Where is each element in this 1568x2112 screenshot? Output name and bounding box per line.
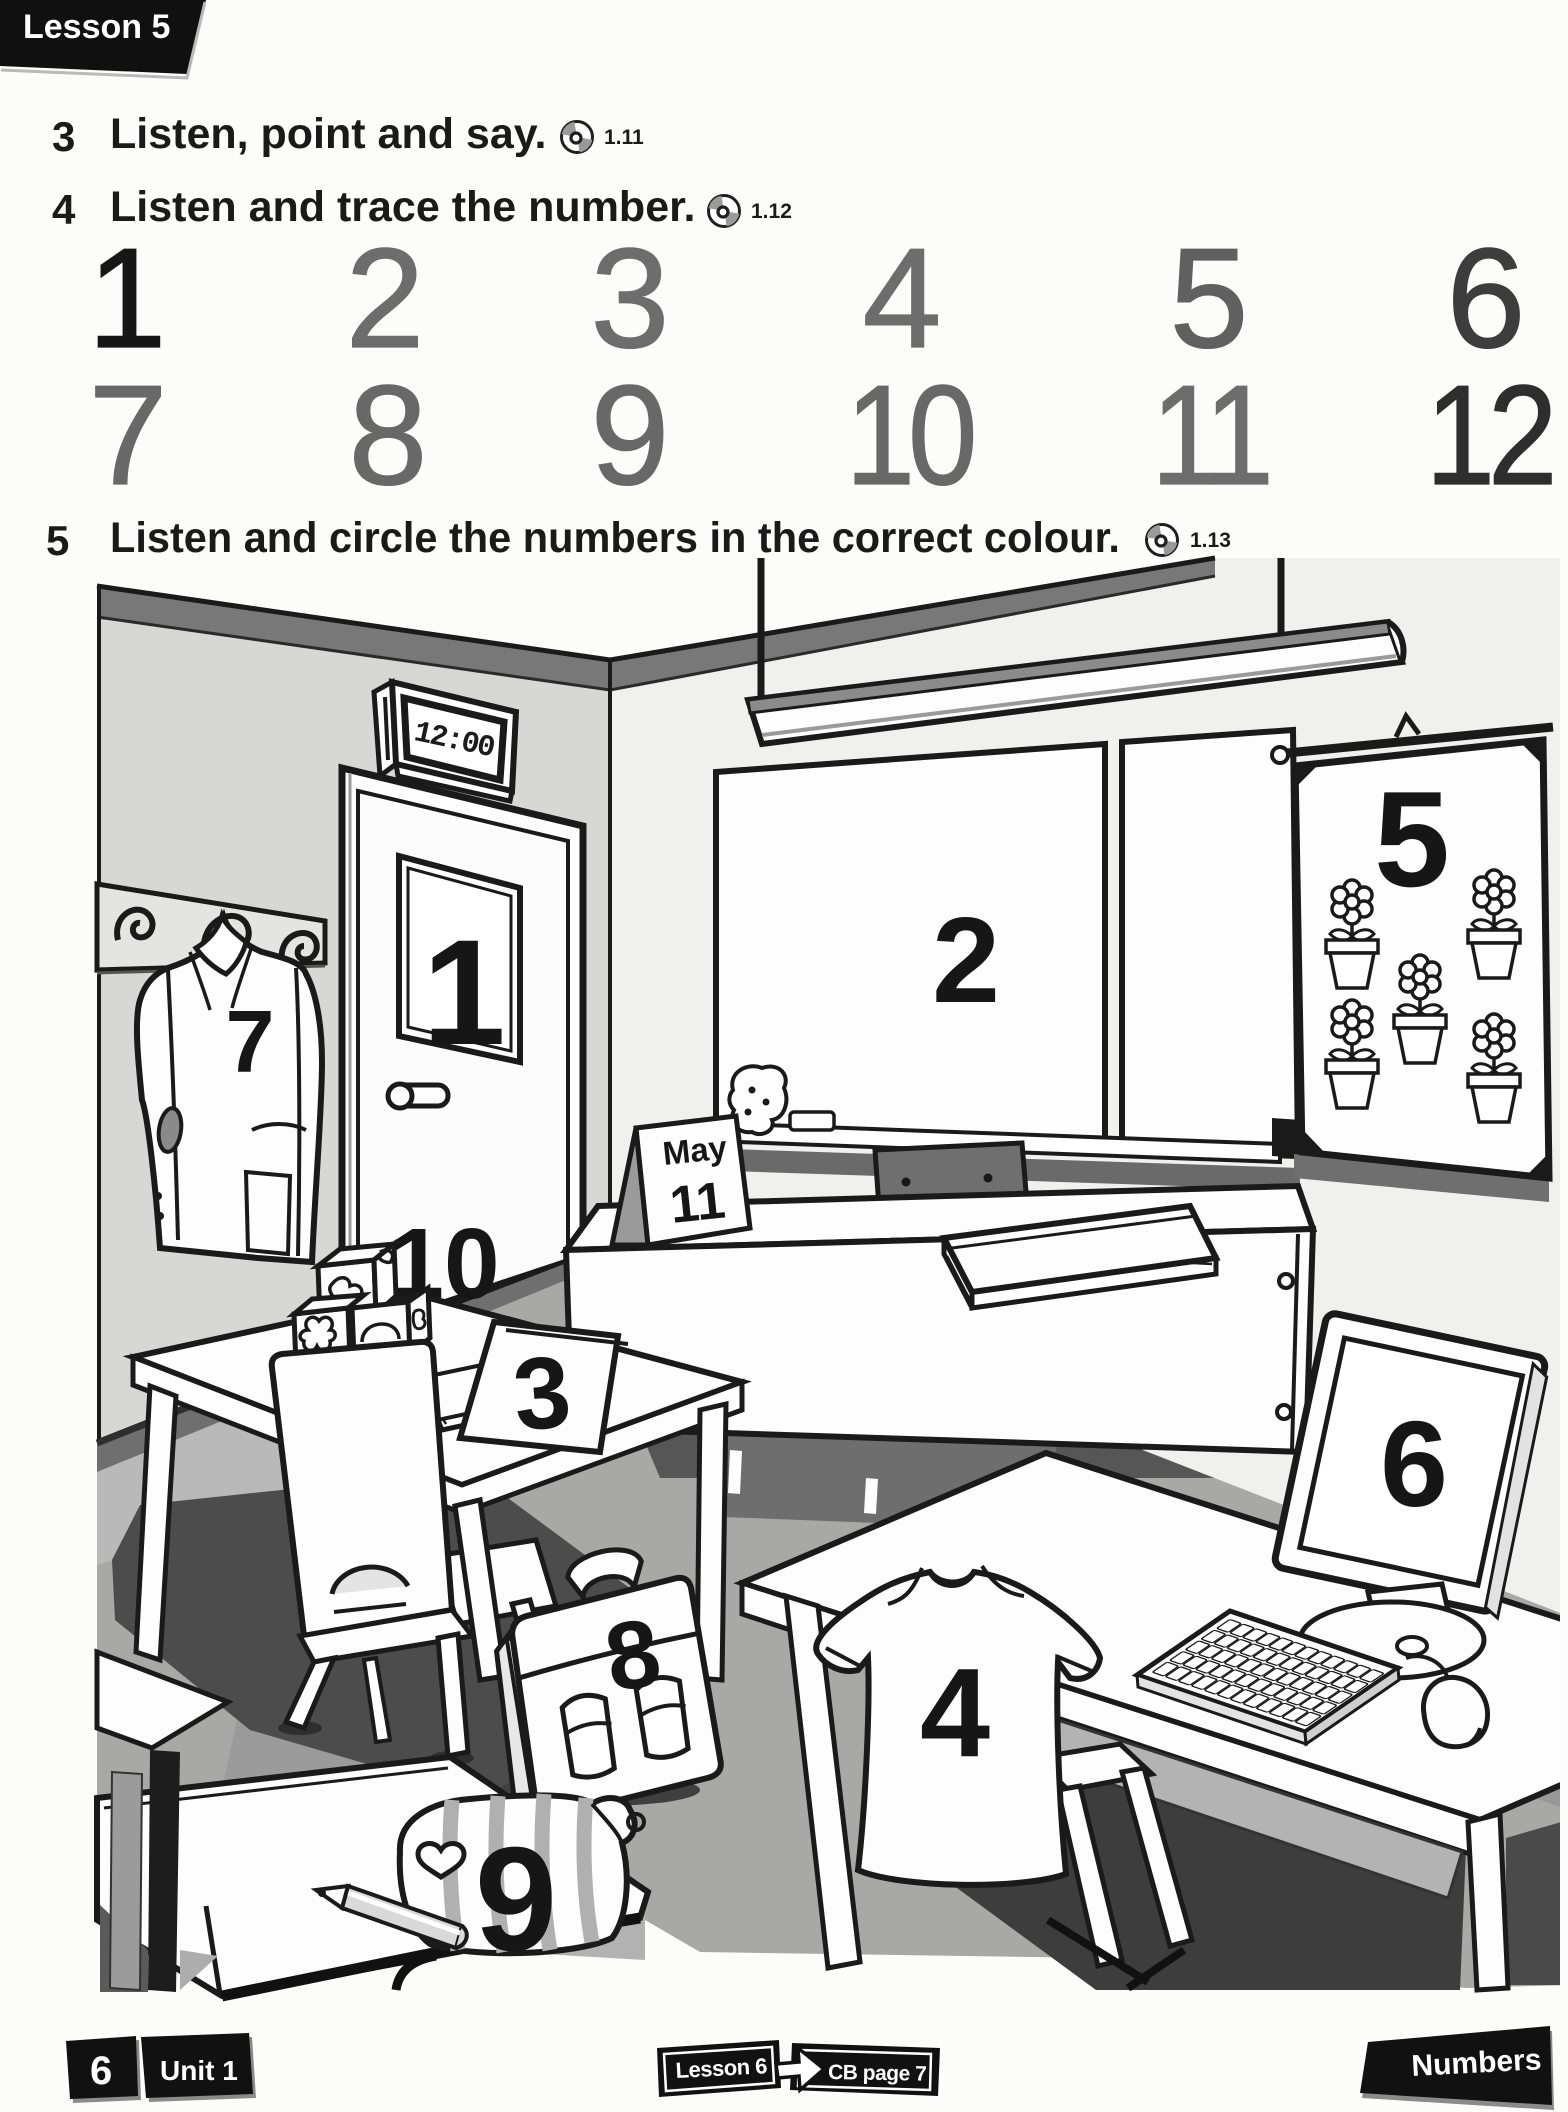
svg-text:9: 9 (475, 1817, 557, 1982)
svg-text:May: May (661, 1128, 729, 1172)
svg-text:CB page 7: CB page 7 (828, 2061, 927, 2086)
svg-text:Numbers: Numbers (1411, 2043, 1543, 2083)
svg-text:6: 6 (1380, 1396, 1448, 1532)
svg-text:Lesson 5: Lesson 5 (23, 8, 170, 46)
svg-text:Unit 1: Unit 1 (160, 2055, 238, 2086)
svg-text:11: 11 (667, 1172, 728, 1235)
svg-text:2: 2 (932, 892, 1000, 1028)
svg-text:7: 7 (226, 992, 275, 1091)
svg-text:3: 3 (509, 1334, 575, 1453)
svg-text:5: 5 (1374, 763, 1450, 915)
svg-text:1: 1 (422, 908, 505, 1076)
svg-text:4: 4 (920, 1642, 990, 1783)
svg-text:Lesson 6: Lesson 6 (675, 2053, 768, 2083)
svg-text:6: 6 (90, 2049, 112, 2093)
